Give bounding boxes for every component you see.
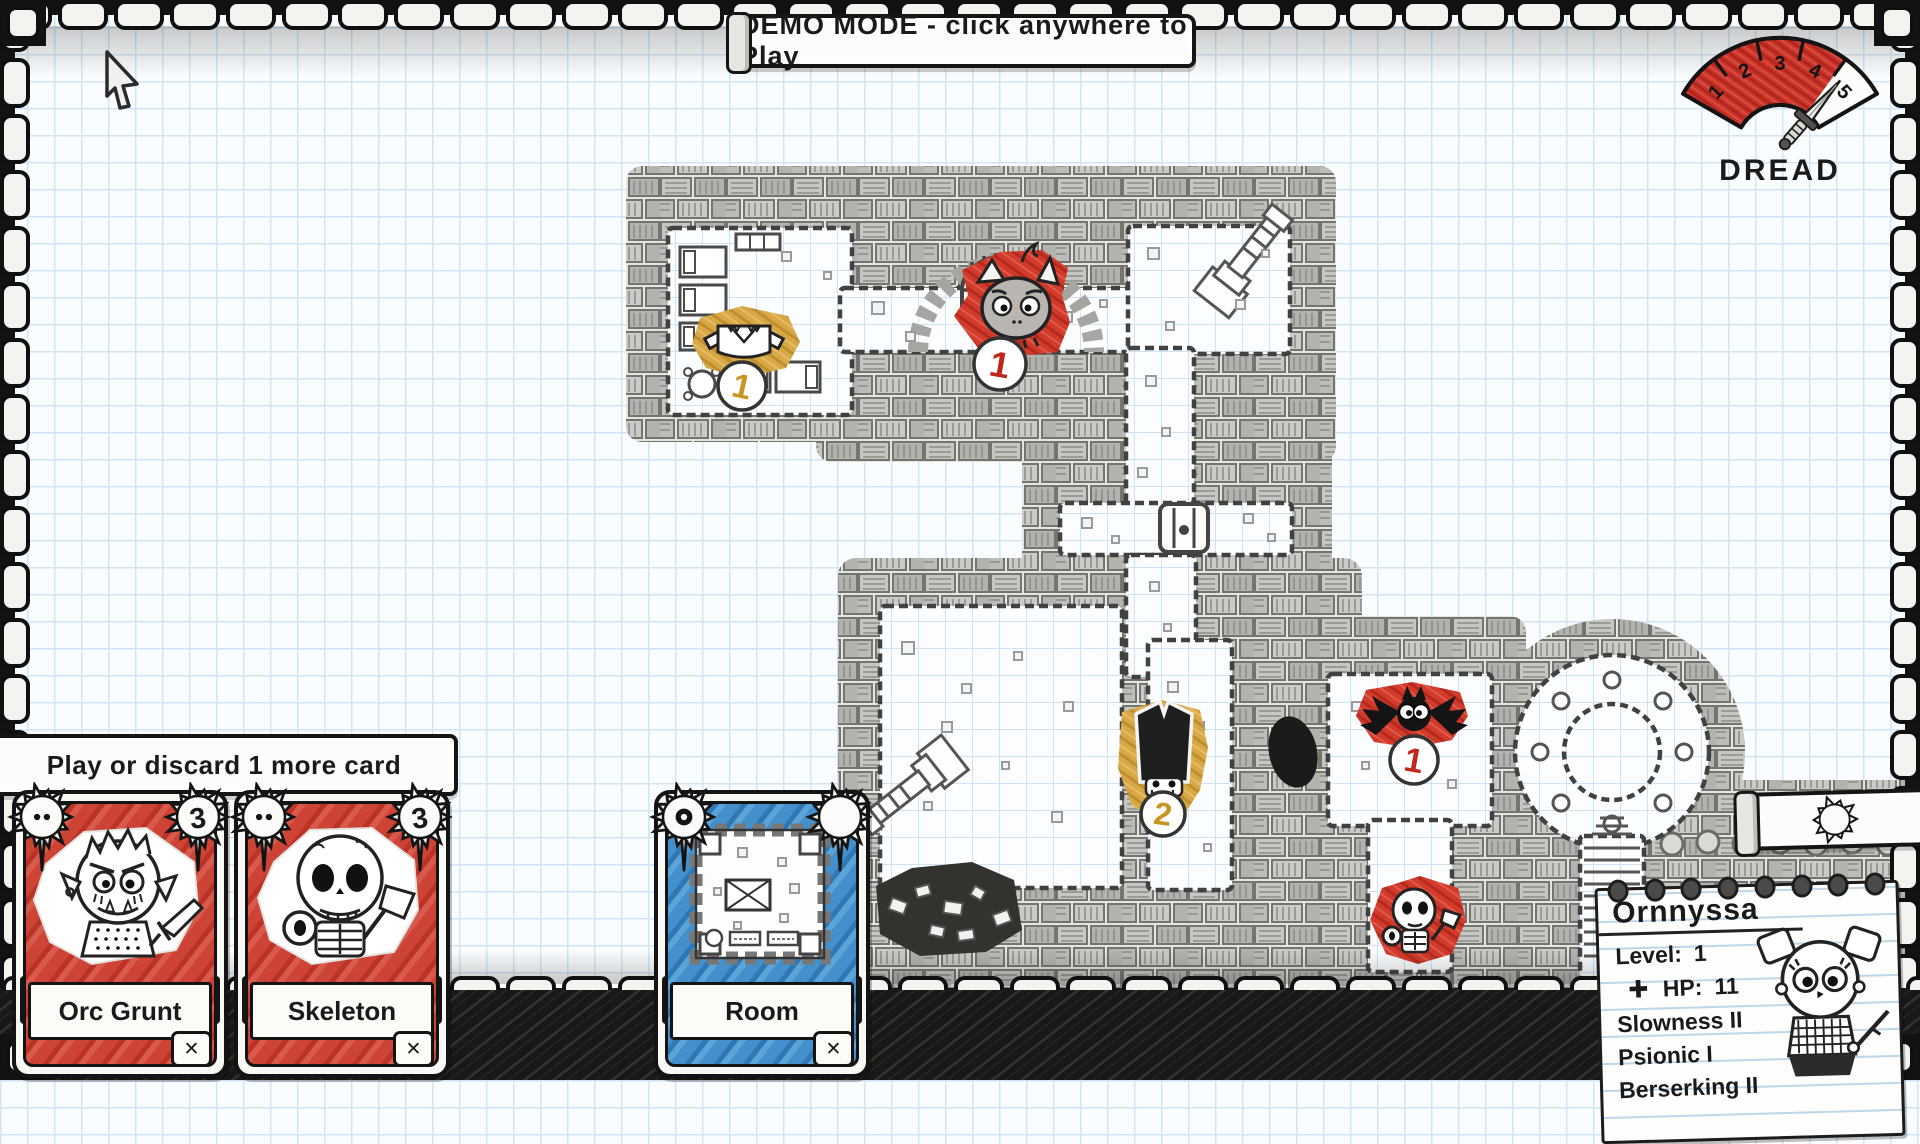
banner-curl bbox=[1733, 790, 1761, 857]
discard-card-button[interactable]: ✕ bbox=[393, 1031, 434, 1067]
discard-card-button[interactable]: ✕ bbox=[171, 1031, 212, 1067]
banner-curl bbox=[726, 12, 752, 74]
card-cost-icon: 3 bbox=[163, 782, 233, 873]
demo-mode-text: DEMO MODE - click anywhere to Play bbox=[740, 10, 1192, 72]
card-orc-grunt[interactable]: 3 Orc Grunt ✕ bbox=[12, 790, 228, 1078]
room-type-icon bbox=[649, 782, 719, 873]
dread-label: DREAD bbox=[1672, 154, 1888, 188]
demo-mode-banner: DEMO MODE - click anywhere to Play bbox=[736, 14, 1196, 68]
chest-icon bbox=[1160, 504, 1208, 552]
dark-helm-icon bbox=[1136, 702, 1192, 797]
dread-gauge: 1 2 3 4 5 bbox=[1674, 34, 1886, 155]
svg-text:3: 3 bbox=[1774, 53, 1785, 75]
card-name: Orc Grunt bbox=[59, 996, 182, 1027]
hp-cross-icon: ✚ bbox=[1628, 976, 1649, 1004]
card-cost-icon: 3 bbox=[385, 782, 455, 873]
monster-type-icon bbox=[229, 782, 299, 873]
hand-prompt-text: Play or discard 1 more card bbox=[47, 750, 402, 781]
rubble-pile bbox=[876, 862, 1022, 956]
card-name: Skeleton bbox=[288, 996, 396, 1027]
character-panel: Ornnyssa Level:1 ✚ HP:11 Slowness II Psi… bbox=[1594, 880, 1905, 1144]
monster-type-icon bbox=[7, 782, 77, 873]
dread-meter: 1 2 3 4 5 DREAD bbox=[1672, 34, 1888, 188]
discard-card-button[interactable]: ✕ bbox=[813, 1031, 854, 1067]
card-skeleton[interactable]: 3 Skeleton ✕ bbox=[234, 790, 450, 1078]
character-portrait bbox=[1743, 923, 1900, 1105]
gold-counter: 42 bbox=[1743, 787, 1920, 851]
gold-spark-icon bbox=[1761, 793, 1908, 847]
card-room[interactable]: Room ✕ bbox=[654, 790, 870, 1078]
card-name: Room bbox=[725, 996, 799, 1027]
card-cost-icon bbox=[805, 782, 875, 873]
cursor-arrow-icon bbox=[102, 50, 144, 112]
